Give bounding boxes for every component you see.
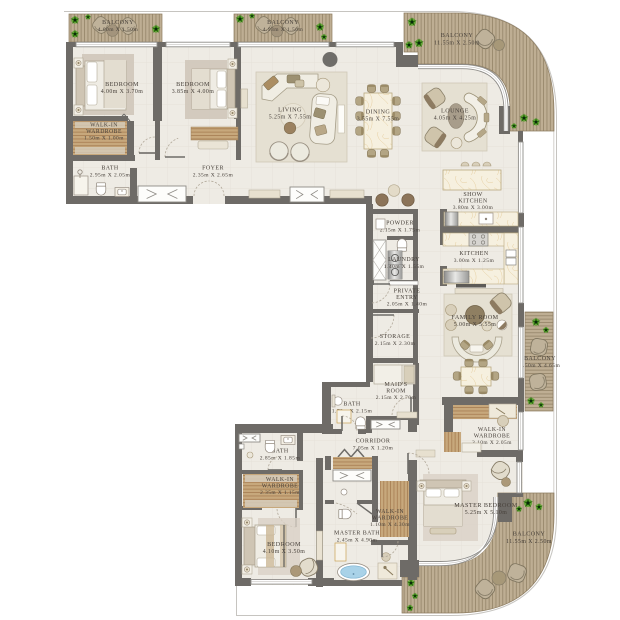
svg-text:5.25m X 5.10m: 5.25m X 5.10m (465, 510, 508, 516)
svg-text:WALK-IN: WALK-IN (90, 123, 118, 129)
svg-text:KITCHEN: KITCHEN (459, 251, 488, 257)
svg-text:SHOW: SHOW (463, 192, 482, 198)
svg-text:WALK-IN: WALK-IN (478, 427, 506, 433)
svg-text:4.05m X 4.25m: 4.05m X 4.25m (434, 116, 477, 122)
svg-text:2.45m X 4.90m: 2.45m X 4.90m (337, 538, 378, 544)
svg-text:5.00m X 5.55m: 5.00m X 5.55m (454, 322, 497, 328)
svg-text:MAID'S: MAID'S (385, 382, 408, 388)
svg-text:BEDROOM: BEDROOM (105, 82, 139, 88)
svg-text:2.35m X 2.65m: 2.35m X 2.65m (193, 173, 234, 179)
svg-text:2.85m X 1.85m: 2.85m X 1.85m (260, 456, 301, 462)
svg-text:2.95m X 2.05m: 2.95m X 2.05m (90, 173, 131, 179)
svg-text:WALK-IN: WALK-IN (376, 509, 404, 515)
svg-text:WARDROBE: WARDROBE (474, 434, 510, 440)
svg-text:1.40m X 1.55m: 1.40m X 1.55m (384, 264, 425, 270)
svg-text:MASTER BATH: MASTER BATH (334, 531, 380, 537)
svg-text:5.25m X 7.55m: 5.25m X 7.55m (269, 115, 312, 121)
svg-text:BATH: BATH (343, 402, 361, 408)
svg-text:BALCONY: BALCONY (524, 356, 556, 362)
svg-text:WARDROBE: WARDROBE (262, 484, 298, 490)
svg-text:LAUNDRY: LAUNDRY (388, 257, 420, 263)
svg-text:2.35m X 1.15m: 2.35m X 1.15m (260, 490, 300, 496)
svg-text:1.10m X 4.30m: 1.10m X 4.30m (370, 522, 410, 528)
svg-text:LOUNGE: LOUNGE (441, 109, 469, 115)
svg-text:ENTRY: ENTRY (396, 295, 418, 301)
svg-text:2.15m X 1.75m: 2.15m X 1.75m (380, 228, 421, 234)
svg-text:BEDROOM: BEDROOM (267, 542, 301, 548)
svg-text:DINING: DINING (366, 110, 391, 116)
svg-text:ROOM: ROOM (386, 389, 406, 395)
svg-text:1.50m X 1.00m: 1.50m X 1.00m (84, 136, 124, 142)
svg-text:BATH: BATH (101, 166, 119, 172)
svg-text:4.00m X 1.50m: 4.00m X 1.50m (98, 27, 139, 33)
svg-text:3.80m X 3.00m: 3.80m X 3.00m (453, 205, 494, 211)
svg-text:BEDROOM: BEDROOM (176, 82, 210, 88)
svg-text:WARDROBE: WARDROBE (372, 516, 408, 522)
svg-text:1.50m X 4.65m: 1.50m X 4.65m (520, 363, 561, 369)
svg-text:4.93m X 1.50m: 4.93m X 1.50m (263, 27, 304, 33)
svg-text:4.00m X 3.70m: 4.00m X 3.70m (101, 89, 144, 95)
svg-text:STORAGE: STORAGE (380, 334, 410, 340)
svg-text:MASTER BEDROOM: MASTER BEDROOM (454, 503, 518, 509)
svg-text:BALCONY: BALCONY (441, 33, 474, 39)
svg-text:PRIVATE: PRIVATE (394, 289, 421, 295)
svg-text:3.00m X 1.25m: 3.00m X 1.25m (454, 258, 495, 264)
svg-text:11.55m X 2.50m: 11.55m X 2.50m (434, 41, 480, 47)
svg-text:POWDER: POWDER (386, 221, 414, 227)
svg-text:WARDROBE: WARDROBE (86, 129, 122, 135)
svg-text:2.15m X 2.30m: 2.15m X 2.30m (375, 341, 416, 347)
svg-text:BALCONY: BALCONY (513, 532, 546, 538)
svg-text:BALCONY: BALCONY (267, 20, 299, 26)
svg-text:WALK-IN: WALK-IN (266, 477, 294, 483)
svg-text:3.55m X 7.55m: 3.55m X 7.55m (357, 117, 400, 123)
svg-text:FAMILY ROOM: FAMILY ROOM (451, 315, 498, 321)
svg-text:BALCONY: BALCONY (102, 20, 134, 26)
svg-text:FOYER: FOYER (202, 166, 224, 172)
svg-text:4.10m X 3.50m: 4.10m X 3.50m (263, 549, 306, 555)
svg-text:2.05m X 1.40m: 2.05m X 1.40m (387, 302, 428, 308)
svg-text:11.55m X 2.50m: 11.55m X 2.50m (506, 539, 552, 545)
svg-text:LIVING: LIVING (278, 108, 302, 114)
svg-text:CORRIDOR: CORRIDOR (356, 439, 391, 445)
svg-text:3.85m X 4.00m: 3.85m X 4.00m (172, 89, 215, 95)
svg-text:KITCHEN: KITCHEN (458, 199, 487, 205)
